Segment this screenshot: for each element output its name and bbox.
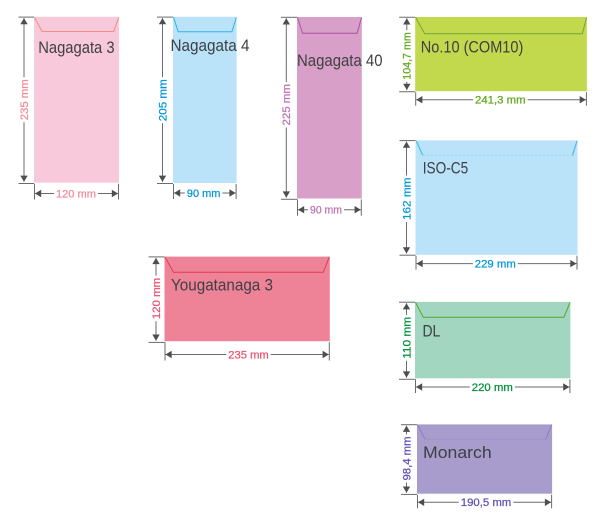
svg-text:90 mm: 90 mm — [187, 188, 221, 200]
svg-text:229 mm: 229 mm — [475, 258, 516, 270]
svg-text:120 mm: 120 mm — [151, 278, 163, 320]
svg-text:Monarch: Monarch — [423, 444, 492, 462]
svg-text:205 mm: 205 mm — [157, 79, 169, 121]
svg-text:104,7 mm: 104,7 mm — [402, 32, 414, 80]
svg-text:Nagagata 3: Nagagata 3 — [38, 39, 114, 57]
svg-text:Nagagata 4: Nagagata 4 — [171, 37, 250, 55]
svg-text:110 mm: 110 mm — [401, 317, 413, 359]
svg-text:162 mm: 162 mm — [401, 178, 413, 221]
svg-text:98,4 mm: 98,4 mm — [401, 437, 413, 481]
svg-text:235 mm: 235 mm — [228, 349, 269, 361]
svg-text:Yougatanaga 3: Yougatanaga 3 — [171, 277, 273, 295]
svg-text:120 mm: 120 mm — [56, 188, 96, 200]
svg-text:190,5 mm: 190,5 mm — [461, 497, 512, 509]
svg-text:225 mm: 225 mm — [281, 84, 293, 126]
svg-text:Nagagata 40: Nagagata 40 — [297, 52, 383, 70]
svg-text:90 mm: 90 mm — [310, 205, 342, 217]
svg-text:241,3 mm: 241,3 mm — [475, 95, 526, 107]
svg-text:ISO-C5: ISO-C5 — [423, 159, 469, 177]
svg-text:DL: DL — [423, 323, 441, 341]
svg-text:220 mm: 220 mm — [472, 382, 513, 394]
svg-text:No.10 (COM10): No.10 (COM10) — [421, 38, 524, 56]
svg-text:235 mm: 235 mm — [19, 79, 31, 120]
